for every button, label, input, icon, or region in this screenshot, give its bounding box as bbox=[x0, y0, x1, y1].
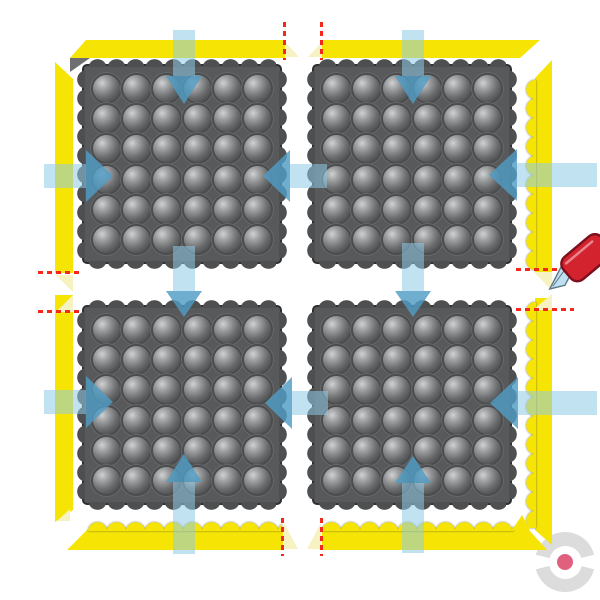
ramp-right-lower bbox=[535, 298, 552, 545]
dome bbox=[353, 437, 380, 464]
dome bbox=[123, 135, 150, 162]
dome bbox=[474, 437, 501, 464]
dome bbox=[323, 226, 350, 253]
dome bbox=[474, 316, 501, 343]
dome bbox=[414, 407, 441, 434]
dome bbox=[474, 135, 501, 162]
dome bbox=[153, 346, 180, 373]
dome bbox=[123, 316, 150, 343]
dome bbox=[123, 196, 150, 223]
mat-assembly-diagram bbox=[0, 0, 600, 600]
dome bbox=[184, 166, 211, 193]
dome bbox=[244, 316, 271, 343]
dome bbox=[214, 226, 241, 253]
logo-center-dot bbox=[557, 554, 573, 570]
arrow-left-into-mat4-shaft bbox=[518, 391, 597, 415]
dome bbox=[383, 166, 410, 193]
dome bbox=[184, 196, 211, 223]
dome bbox=[93, 226, 120, 253]
dome bbox=[244, 135, 271, 162]
dome bbox=[353, 75, 380, 102]
dome bbox=[353, 135, 380, 162]
dome bbox=[444, 166, 471, 193]
dome bbox=[153, 437, 180, 464]
dome bbox=[444, 467, 471, 494]
dome bbox=[93, 467, 120, 494]
dome bbox=[444, 135, 471, 162]
dome bbox=[93, 316, 120, 343]
dome bbox=[93, 437, 120, 464]
dome bbox=[214, 166, 241, 193]
dome bbox=[244, 437, 271, 464]
dome bbox=[123, 166, 150, 193]
dome bbox=[214, 467, 241, 494]
dome bbox=[414, 316, 441, 343]
dome bbox=[474, 196, 501, 223]
dome bbox=[214, 135, 241, 162]
dome bbox=[244, 75, 271, 102]
ramp-bevel-endcap-5 bbox=[56, 275, 73, 292]
cut-left-lower-ramp bbox=[38, 310, 82, 313]
ramp-top-right bbox=[322, 40, 540, 58]
arrow-left-into-mat2-shaft bbox=[517, 163, 597, 187]
dome bbox=[383, 407, 410, 434]
arrow-right-into-mat3-shaft bbox=[44, 390, 86, 414]
dome bbox=[353, 105, 380, 132]
arrow-left-into-mat3-shaft bbox=[292, 391, 328, 415]
dome bbox=[474, 467, 501, 494]
dome bbox=[123, 407, 150, 434]
dome bbox=[93, 135, 120, 162]
dome bbox=[244, 346, 271, 373]
cut-left-upper-ramp bbox=[38, 271, 82, 274]
ramp-bottom-right bbox=[322, 530, 547, 550]
dome bbox=[444, 226, 471, 253]
dome bbox=[123, 75, 150, 102]
dome bbox=[244, 196, 271, 223]
dome bbox=[414, 135, 441, 162]
dome bbox=[214, 196, 241, 223]
cut-top-left-ramp bbox=[283, 22, 286, 60]
dome bbox=[414, 105, 441, 132]
dome bbox=[444, 196, 471, 223]
dome bbox=[414, 437, 441, 464]
dome bbox=[153, 166, 180, 193]
dome bbox=[383, 316, 410, 343]
cut-bottom-left-ramp bbox=[281, 518, 284, 556]
dome bbox=[153, 105, 180, 132]
dome bbox=[444, 407, 471, 434]
dome bbox=[414, 196, 441, 223]
dome bbox=[123, 376, 150, 403]
dome bbox=[153, 407, 180, 434]
dome bbox=[214, 407, 241, 434]
dome bbox=[353, 407, 380, 434]
dome bbox=[184, 376, 211, 403]
dome bbox=[383, 196, 410, 223]
ramp-bevel-endcap-4 bbox=[307, 523, 321, 549]
dome bbox=[123, 437, 150, 464]
arrow-left-into-mat1-shaft bbox=[290, 164, 327, 188]
dome bbox=[323, 105, 350, 132]
dome bbox=[184, 135, 211, 162]
dome bbox=[323, 316, 350, 343]
dome bbox=[474, 407, 501, 434]
dome bbox=[214, 376, 241, 403]
dome bbox=[323, 437, 350, 464]
dome bbox=[93, 346, 120, 373]
dome bbox=[323, 196, 350, 223]
dome bbox=[214, 346, 241, 373]
arrow-right-into-mat1-shaft bbox=[44, 164, 86, 188]
dome bbox=[444, 437, 471, 464]
dome bbox=[93, 75, 120, 102]
dome bbox=[444, 75, 471, 102]
dome bbox=[414, 346, 441, 373]
dome bbox=[123, 346, 150, 373]
dome bbox=[244, 407, 271, 434]
dome bbox=[353, 467, 380, 494]
dome bbox=[383, 105, 410, 132]
dome bbox=[184, 346, 211, 373]
dome bbox=[244, 226, 271, 253]
dome bbox=[474, 346, 501, 373]
dome bbox=[414, 376, 441, 403]
dome bbox=[323, 467, 350, 494]
arrow-down-into-mat2-shaft bbox=[402, 30, 424, 76]
dome bbox=[323, 346, 350, 373]
dome bbox=[123, 105, 150, 132]
utility-knife-icon bbox=[538, 212, 600, 312]
dome bbox=[153, 196, 180, 223]
dome bbox=[153, 316, 180, 343]
dome bbox=[444, 376, 471, 403]
cut-top-right-ramp bbox=[320, 22, 323, 60]
arrow-down-into-mat1-shaft bbox=[173, 30, 195, 76]
dome bbox=[474, 105, 501, 132]
dome bbox=[444, 346, 471, 373]
dome bbox=[474, 75, 501, 102]
dome bbox=[323, 75, 350, 102]
dome bbox=[474, 226, 501, 253]
dome bbox=[383, 135, 410, 162]
dome bbox=[444, 316, 471, 343]
dome bbox=[153, 376, 180, 403]
dome bbox=[123, 226, 150, 253]
ramp-bevel-endcap-3 bbox=[284, 523, 298, 549]
dome bbox=[353, 316, 380, 343]
dome bbox=[93, 196, 120, 223]
dome bbox=[444, 105, 471, 132]
dome bbox=[244, 467, 271, 494]
dome bbox=[153, 135, 180, 162]
arrow-up-into-mat3-shaft bbox=[173, 482, 195, 554]
dome bbox=[214, 75, 241, 102]
dome bbox=[214, 316, 241, 343]
dome bbox=[214, 437, 241, 464]
dome bbox=[353, 196, 380, 223]
dome bbox=[353, 376, 380, 403]
dome bbox=[184, 316, 211, 343]
dome bbox=[123, 467, 150, 494]
scallop-right-lower bbox=[526, 302, 536, 528]
dome bbox=[93, 105, 120, 132]
dome bbox=[353, 226, 380, 253]
dome bbox=[214, 105, 241, 132]
cut-bottom-right-ramp bbox=[320, 518, 323, 556]
dome bbox=[244, 105, 271, 132]
dome bbox=[383, 437, 410, 464]
dome bbox=[383, 346, 410, 373]
arrow-up-into-mat4-shaft bbox=[402, 483, 424, 553]
dome bbox=[353, 166, 380, 193]
arrow-down-into-mat3-shaft bbox=[173, 246, 195, 291]
dome bbox=[353, 346, 380, 373]
dome bbox=[184, 407, 211, 434]
dome bbox=[414, 166, 441, 193]
dome bbox=[323, 135, 350, 162]
arrow-down-into-mat4-shaft bbox=[402, 243, 424, 291]
dome bbox=[244, 376, 271, 403]
dome bbox=[383, 376, 410, 403]
ramp-bevel-endcap-1 bbox=[285, 42, 299, 57]
dome bbox=[184, 105, 211, 132]
